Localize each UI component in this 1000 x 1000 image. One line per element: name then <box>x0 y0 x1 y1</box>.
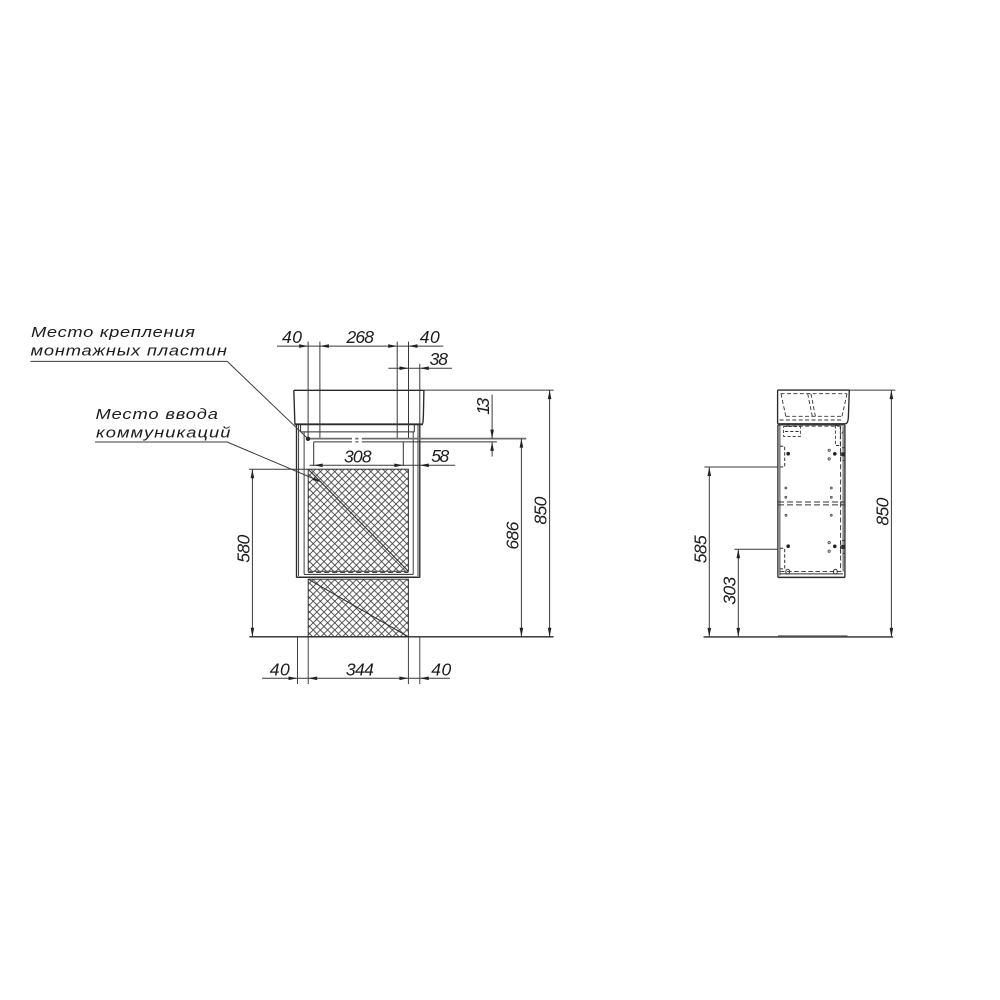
svg-text:268: 268 <box>345 327 374 347</box>
svg-text:585: 585 <box>690 535 710 563</box>
svg-text:коммуникаций: коммуникаций <box>96 424 230 441</box>
svg-text:580: 580 <box>233 535 253 563</box>
svg-text:Место ввода: Место ввода <box>96 405 218 422</box>
svg-text:40: 40 <box>420 327 440 347</box>
svg-text:344: 344 <box>346 659 374 679</box>
svg-text:850: 850 <box>531 496 551 524</box>
svg-text:58: 58 <box>431 446 449 466</box>
svg-text:13: 13 <box>473 398 493 415</box>
svg-text:850: 850 <box>872 497 892 525</box>
svg-text:686: 686 <box>502 521 522 549</box>
svg-text:38: 38 <box>429 349 448 369</box>
svg-text:монтажных пластин: монтажных пластин <box>31 342 227 359</box>
svg-text:Место крепления: Место крепления <box>31 324 195 341</box>
svg-text:303: 303 <box>719 577 739 605</box>
svg-text:40: 40 <box>431 659 451 679</box>
svg-text:308: 308 <box>344 446 372 466</box>
svg-text:40: 40 <box>270 659 290 679</box>
svg-text:40: 40 <box>282 327 302 347</box>
